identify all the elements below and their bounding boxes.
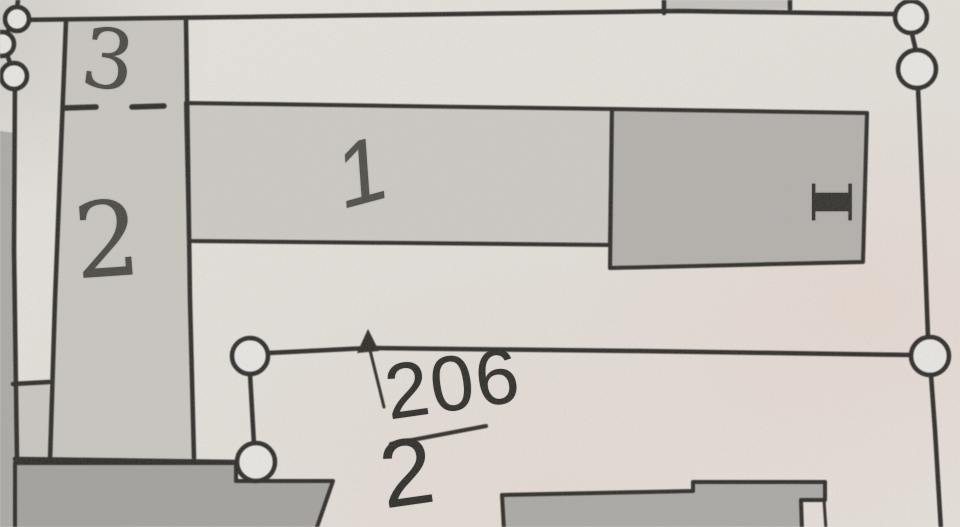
building-house-1: [186, 103, 612, 245]
boundary-segment-lower-right: [824, 500, 826, 527]
cadastral-map-photo: 3 2 1 I 206 2: [0, 0, 960, 527]
survey-point: [1, 63, 27, 89]
boundary-line-bottom-left: [15, 459, 236, 462]
boundary-line-right-upper: [918, 88, 928, 337]
cadastral-map-drawing: [0, 0, 960, 527]
parcel-number-numerator: 206: [380, 335, 526, 431]
survey-link-vertical: [250, 374, 254, 444]
survey-point: [5, 7, 29, 31]
building-bottom-right: [502, 482, 825, 527]
strip-divider-dash-2: [132, 106, 164, 107]
boundary-line-right-lower: [931, 375, 941, 527]
storey-marker-label: I: [798, 144, 858, 259]
boundary-line-top: [17, 11, 893, 20]
survey-point: [0, 32, 14, 56]
survey-point: [237, 443, 275, 481]
label-arrow: [357, 329, 379, 353]
survey-point: [232, 338, 268, 374]
parcel-label-3: 3: [77, 17, 139, 105]
survey-point: [911, 337, 949, 375]
strip-connector-line: [13, 382, 49, 384]
strip-divider-dash-1: [64, 107, 96, 108]
building-bottom-left: [15, 463, 333, 527]
parcel-label-2: 2: [70, 186, 143, 294]
survey-point: [895, 1, 927, 33]
survey-point: [898, 50, 936, 88]
